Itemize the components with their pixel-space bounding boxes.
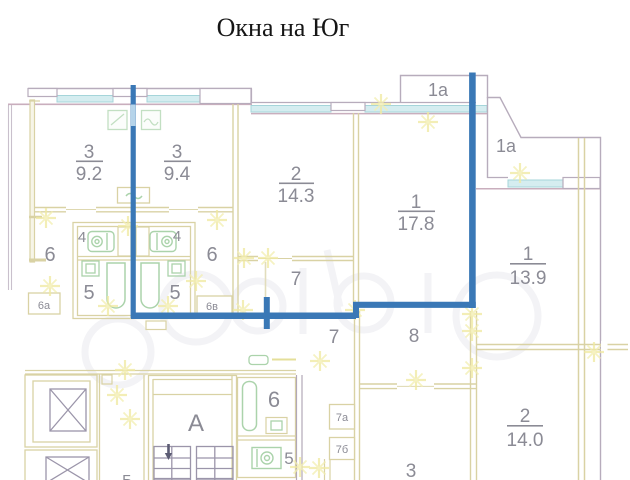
svg-text:3: 3 xyxy=(84,142,95,163)
svg-text:1: 1 xyxy=(523,244,534,265)
svg-text:6в: 6в xyxy=(206,301,218,313)
svg-text:5: 5 xyxy=(169,282,180,304)
svg-text:7: 7 xyxy=(329,327,340,348)
svg-text:9.2: 9.2 xyxy=(76,164,102,185)
svg-text:Окна на Юг: Окна на Юг xyxy=(217,13,350,42)
svg-text:7а: 7а xyxy=(336,412,349,424)
svg-text:1: 1 xyxy=(411,192,422,213)
svg-text:6: 6 xyxy=(268,387,280,412)
svg-text:7б: 7б xyxy=(336,444,348,456)
svg-text:5: 5 xyxy=(83,282,94,304)
svg-text:2: 2 xyxy=(291,164,302,185)
svg-text:3: 3 xyxy=(172,142,183,163)
svg-text:7: 7 xyxy=(291,269,302,290)
svg-text:14.0: 14.0 xyxy=(507,430,544,451)
svg-text:4: 4 xyxy=(173,228,181,245)
svg-text:5: 5 xyxy=(284,449,293,468)
svg-text:17.8: 17.8 xyxy=(398,214,435,235)
svg-text:4: 4 xyxy=(78,229,86,246)
svg-text:6: 6 xyxy=(206,244,217,266)
svg-text:8: 8 xyxy=(409,326,420,347)
svg-text:2: 2 xyxy=(520,406,531,427)
svg-text:6а: 6а xyxy=(38,300,51,312)
svg-text:9.4: 9.4 xyxy=(164,164,191,185)
svg-text:А: А xyxy=(188,410,204,437)
svg-text:1а: 1а xyxy=(496,136,517,156)
svg-text:1а: 1а xyxy=(428,80,449,100)
svg-text:6: 6 xyxy=(44,244,55,266)
svg-text:Б: Б xyxy=(122,472,132,480)
svg-text:13.9: 13.9 xyxy=(510,268,547,289)
svg-text:14.3: 14.3 xyxy=(278,186,315,207)
svg-text:3: 3 xyxy=(406,461,417,480)
